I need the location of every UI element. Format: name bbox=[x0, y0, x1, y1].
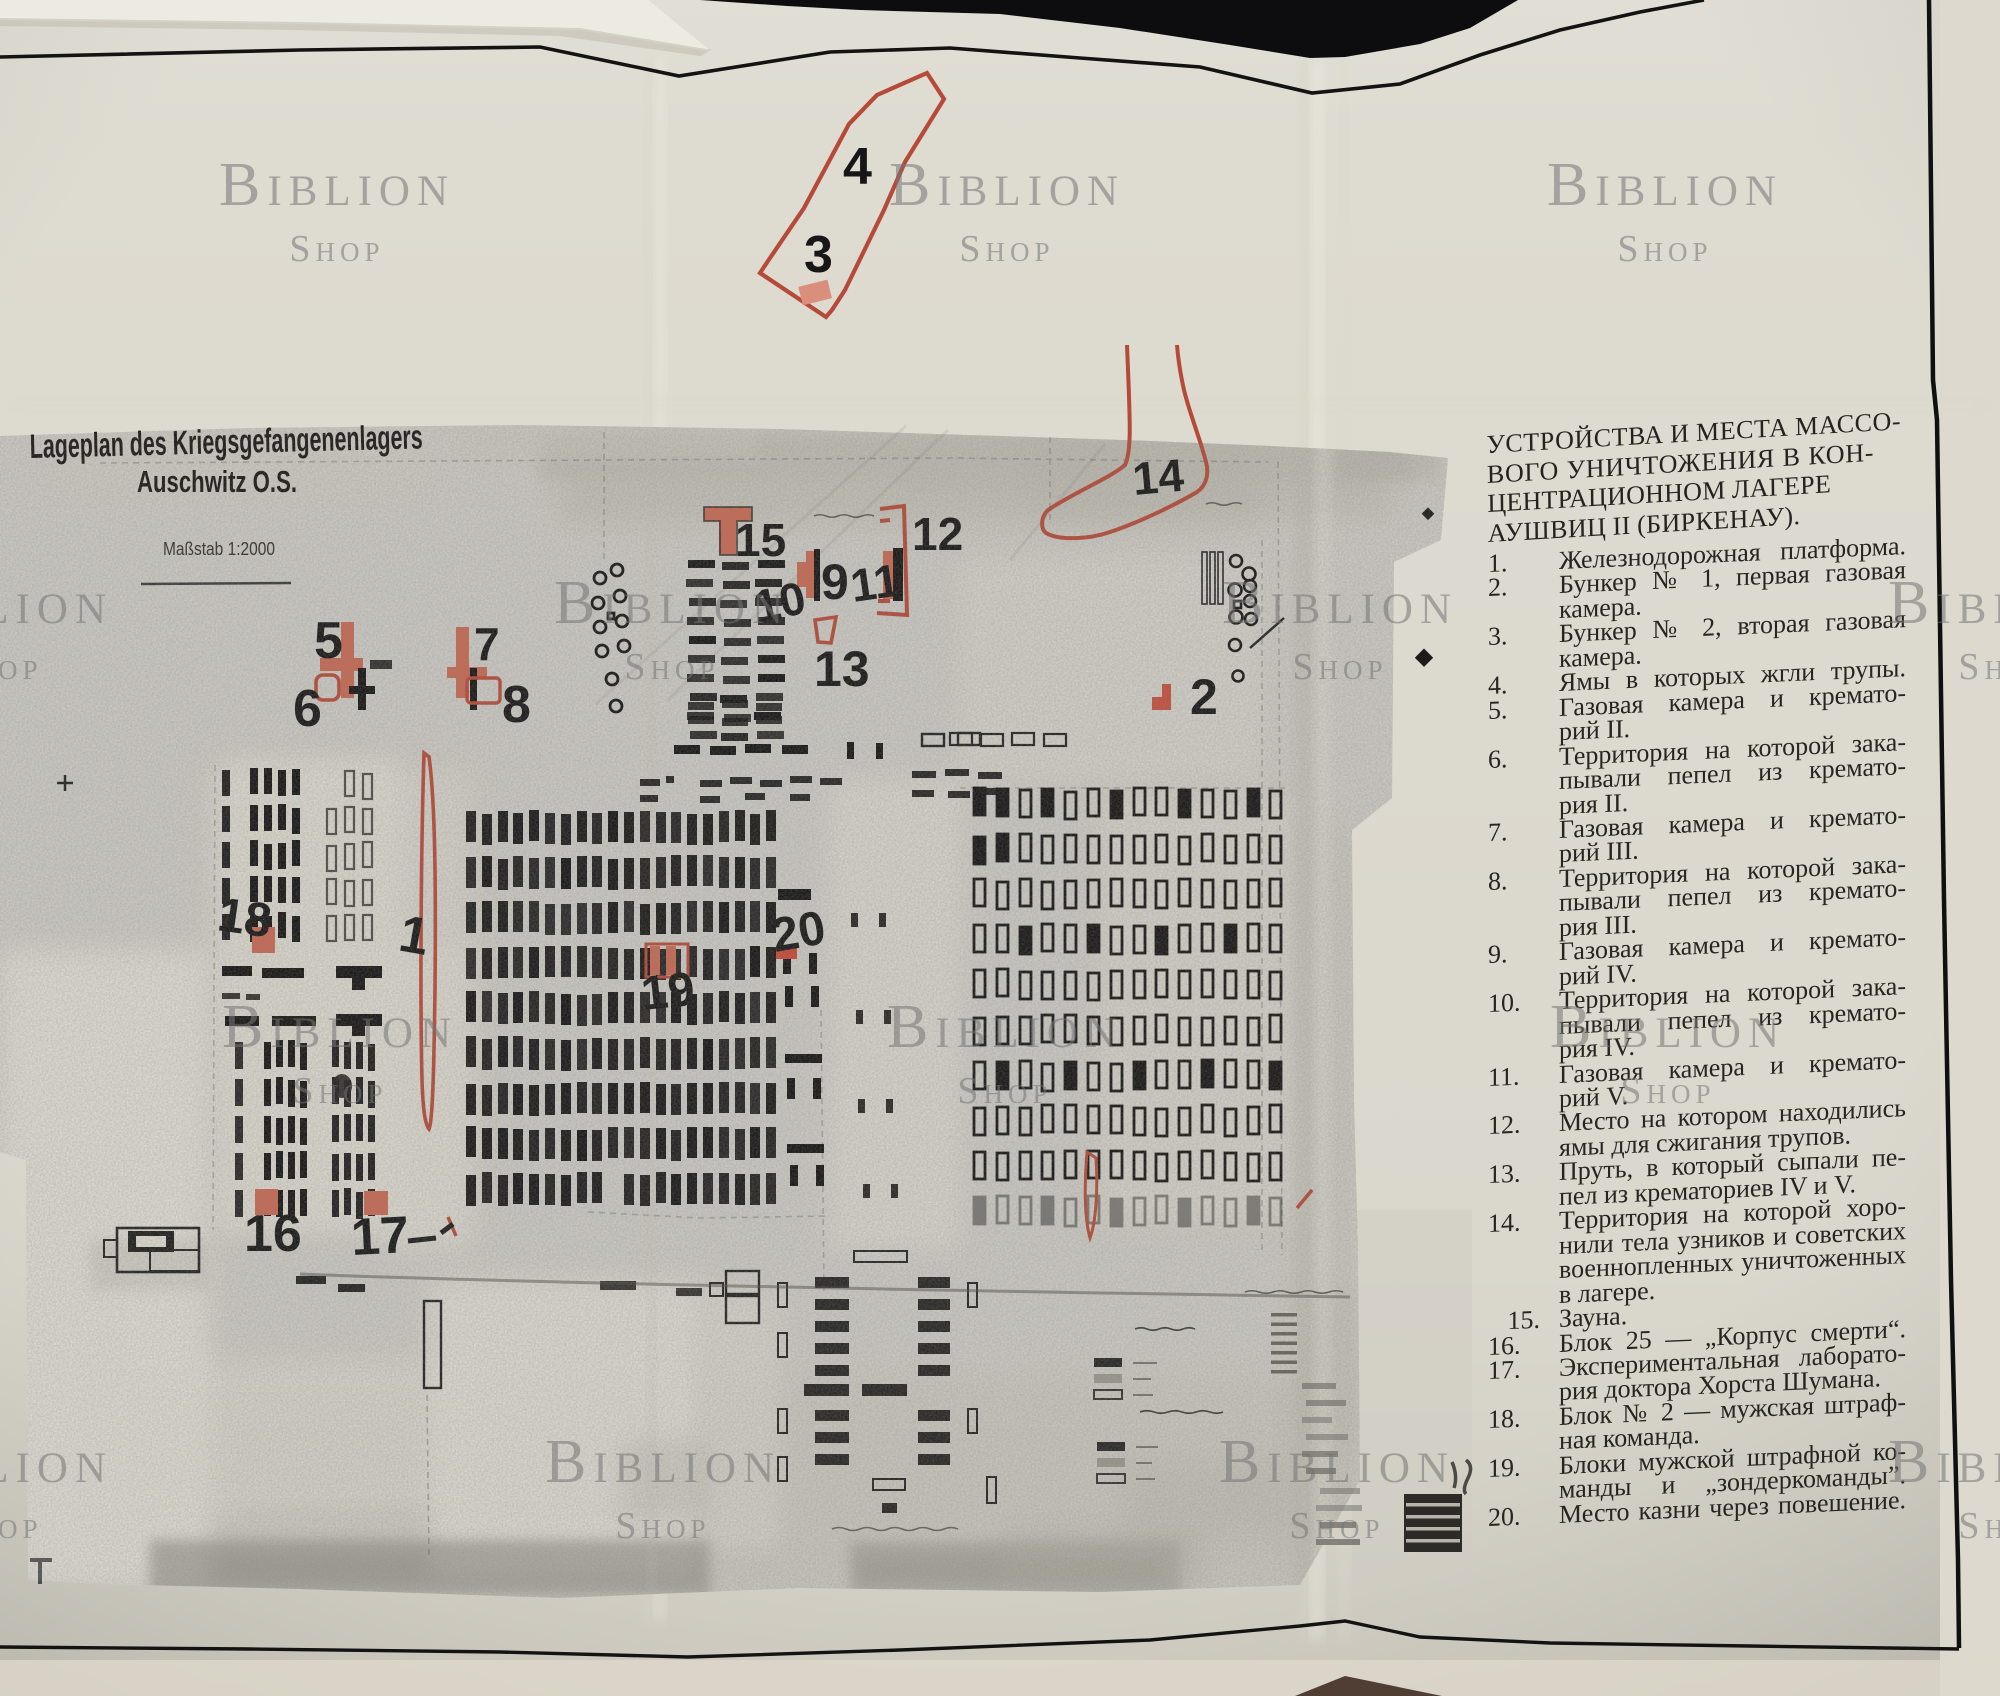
svg-text:4: 4 bbox=[843, 138, 872, 196]
svg-text:3: 3 bbox=[804, 226, 833, 284]
